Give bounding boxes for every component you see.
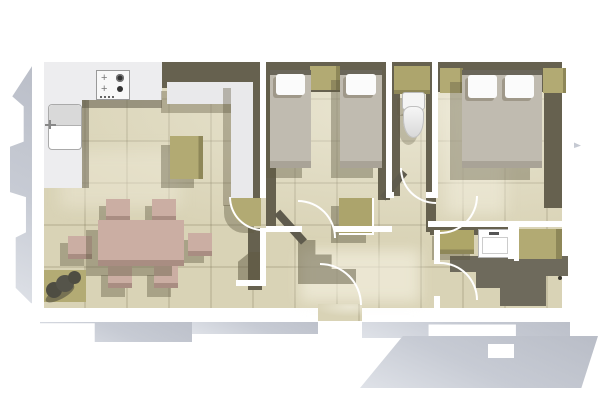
wall-living-nook — [236, 280, 262, 286]
exterior-shadow-slab — [360, 336, 598, 388]
sink-drainboard — [49, 105, 81, 126]
door-stop-dot — [558, 276, 562, 280]
sofa-vertical — [231, 82, 253, 200]
kitchen-island — [170, 136, 203, 179]
washbasin — [478, 229, 512, 258]
dining-chair — [188, 233, 212, 256]
wall-wc-stub-left — [386, 192, 394, 198]
wall-living-bedroom1-lower — [260, 228, 266, 286]
dining-chair — [68, 236, 92, 259]
pillow — [346, 74, 376, 95]
sink-faucet-handle — [49, 120, 51, 129]
pillow — [468, 75, 497, 98]
dining-chair — [108, 266, 132, 288]
hob-knobs — [100, 94, 114, 98]
bedside-table-twin — [310, 66, 340, 90]
pillow — [276, 74, 305, 95]
hob-burner-small — [117, 86, 123, 92]
wall-bedroom1-wc — [386, 56, 392, 196]
dining-chair — [152, 199, 176, 221]
gas-hob: + + — [96, 70, 130, 100]
wall-hall-mid — [434, 230, 440, 264]
wall-living-bedroom1-upper — [260, 56, 266, 198]
dining-table — [98, 220, 184, 266]
shower-unit — [518, 229, 562, 259]
potted-plant-leaf — [68, 271, 81, 284]
floor-plan-render: + + — [0, 0, 600, 400]
wall-bedroom1-bottom-left — [266, 226, 302, 232]
pillow — [505, 75, 534, 98]
dining-chair — [106, 199, 130, 221]
wall-shower-left — [514, 227, 519, 261]
wall-bedroom1-bottom-right — [334, 226, 392, 232]
bedside-table-left — [440, 68, 463, 93]
kitchen-sink — [48, 104, 82, 150]
hob-burner-large — [116, 74, 124, 82]
basin-bowl — [482, 237, 508, 254]
exterior-shadow-notch — [488, 344, 514, 358]
wc-cistern-shelf — [394, 66, 430, 94]
wall-shower-top — [514, 221, 568, 227]
bedside-table-right — [543, 68, 566, 93]
hob-grate-cross-1: + — [101, 73, 111, 83]
entrance-threshold — [318, 304, 362, 321]
basin-faucet-icon — [489, 232, 499, 235]
hob-grate-cross-2: + — [101, 84, 111, 94]
kitchen-counter-left-edge — [82, 100, 89, 188]
dining-chair — [154, 266, 178, 288]
